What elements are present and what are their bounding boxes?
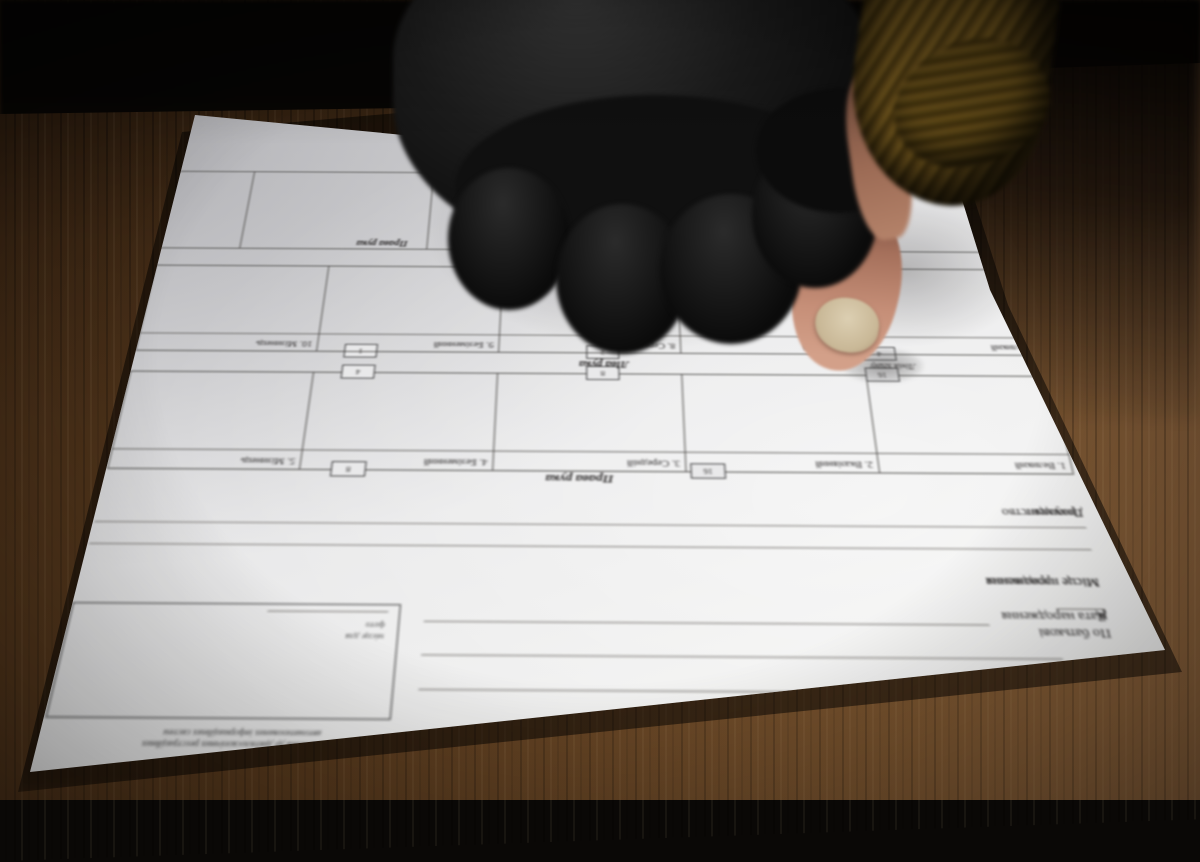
glove-knuckle: [448, 168, 570, 310]
